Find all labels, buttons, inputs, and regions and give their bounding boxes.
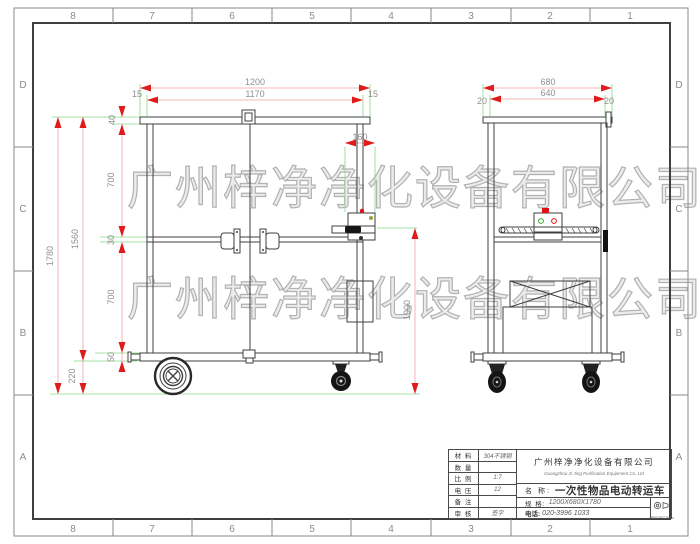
zone-col-label: 1 bbox=[627, 524, 633, 535]
company-name-cn: 广州梓净净化设备有限公司 bbox=[517, 456, 671, 468]
dim-680: 680 bbox=[540, 77, 555, 87]
top-latch bbox=[242, 110, 255, 124]
zone-col-label: 1 bbox=[627, 11, 633, 22]
red-button bbox=[360, 209, 364, 213]
zone-col-label: 6 bbox=[229, 524, 235, 535]
attr-value bbox=[479, 462, 516, 473]
zone-row-label: D bbox=[675, 80, 682, 91]
table-row: 审 核 签字 bbox=[449, 508, 516, 519]
spec-row: 规 格: 1200X680X1780 bbox=[517, 498, 650, 508]
table-row: 材 料 304不锈钢 bbox=[449, 450, 516, 462]
dim-220: 220 bbox=[67, 368, 77, 383]
name-label: 名 称: bbox=[525, 486, 551, 496]
attr-label: 数 量 bbox=[449, 462, 479, 473]
table-row: 数 量 bbox=[449, 462, 516, 474]
zone-col-label: 2 bbox=[547, 11, 553, 22]
dim-20-right: 20 bbox=[604, 96, 614, 106]
zone-col-label: 2 bbox=[547, 524, 553, 535]
attr-value: 签字 bbox=[479, 508, 516, 519]
attr-value: 1:7 bbox=[479, 473, 516, 484]
dim-700-lower: 700 bbox=[106, 289, 116, 304]
battery-box-front bbox=[347, 281, 373, 322]
zone-col-label: 3 bbox=[468, 524, 474, 535]
drive-wheel bbox=[155, 358, 191, 394]
zone-row-label: D bbox=[19, 80, 26, 91]
dim-160: 160 bbox=[352, 132, 367, 142]
dim-40: 40 bbox=[107, 115, 117, 125]
projection-cell: PROJECTION bbox=[650, 498, 671, 518]
zone-col-label: 6 bbox=[229, 11, 235, 22]
zone-row-label: A bbox=[676, 452, 683, 463]
company-block: 广州梓净净化设备有限公司 Guangzhou Zi Jing Purificat… bbox=[517, 450, 671, 484]
caster-side-right bbox=[582, 361, 600, 393]
attr-value bbox=[479, 496, 516, 507]
side-view bbox=[471, 112, 624, 393]
dim-700-upper: 700 bbox=[106, 172, 116, 187]
battery-box-side bbox=[503, 281, 592, 354]
zone-col-label: 4 bbox=[388, 11, 394, 22]
spec-label: 规 格: bbox=[525, 498, 546, 508]
table-row: 比 例 1:7 bbox=[449, 473, 516, 485]
dim-20-left: 20 bbox=[477, 96, 487, 106]
phone-value: 020-3996 1033 bbox=[542, 510, 589, 517]
zone-col-label: 5 bbox=[309, 524, 315, 535]
front-view bbox=[128, 110, 382, 394]
table-row: 备 注 bbox=[449, 496, 516, 508]
zone-col-label: 8 bbox=[70, 524, 76, 535]
control-box-front bbox=[332, 209, 375, 240]
table-row: 电 压 12 bbox=[449, 485, 516, 497]
zone-row-label: B bbox=[20, 328, 27, 339]
dim-1000: 1000 bbox=[402, 300, 412, 320]
attr-label: 电 压 bbox=[449, 485, 479, 496]
zone-col-label: 8 bbox=[70, 11, 76, 22]
spec-value: 1200X680X1780 bbox=[549, 499, 601, 506]
dim-1560: 1560 bbox=[70, 229, 80, 249]
dim-15-left: 15 bbox=[132, 89, 142, 99]
engineering-drawing-sheet: 广州梓净净化设备有限公司 广州梓净净化设备有限公司 8 7 6 bbox=[0, 0, 700, 544]
attr-label: 材 料 bbox=[449, 450, 479, 461]
zone-col-label: 7 bbox=[149, 11, 155, 22]
zone-col-label: 5 bbox=[309, 11, 315, 22]
zone-row-label: C bbox=[19, 204, 26, 215]
caster-side-left bbox=[488, 361, 506, 393]
zone-row-label: A bbox=[20, 452, 27, 463]
dim-1780: 1780 bbox=[45, 246, 55, 266]
attr-value: 304不锈钢 bbox=[479, 450, 516, 461]
title-block: 材 料 304不锈钢 数 量 比 例 1:7 电 压 12 备 注 审 核 签字 bbox=[448, 449, 672, 519]
dim-1200: 1200 bbox=[245, 77, 265, 87]
attr-label: 审 核 bbox=[449, 508, 479, 519]
control-panel-side bbox=[499, 208, 599, 240]
attr-label: 备 注 bbox=[449, 496, 479, 507]
product-name-row: 名 称: 一次性物品电动转运车 bbox=[517, 484, 671, 498]
third-angle-projection-icon bbox=[652, 500, 671, 511]
product-name: 一次性物品电动转运车 bbox=[555, 483, 665, 498]
dim-1170: 1170 bbox=[245, 89, 264, 99]
projection-label: PROJECTION bbox=[651, 516, 671, 520]
caster-front bbox=[331, 361, 351, 391]
company-name-en: Guangzhou Zi Jing Purification Equipment… bbox=[517, 471, 671, 476]
zone-col-label: 3 bbox=[468, 11, 474, 22]
handle-grip bbox=[345, 226, 361, 233]
dim-30: 30 bbox=[106, 235, 116, 245]
attr-label: 比 例 bbox=[449, 473, 479, 484]
zone-col-label: 7 bbox=[149, 524, 155, 535]
dim-15-right: 15 bbox=[368, 89, 378, 99]
dim-50: 50 bbox=[106, 352, 116, 362]
phone-row: 电话: 020-3996 1033 bbox=[517, 508, 650, 518]
dim-640: 640 bbox=[540, 88, 555, 98]
attr-value: 12 bbox=[479, 485, 516, 496]
dimension-lines bbox=[58, 88, 612, 394]
title-block-main: 广州梓净净化设备有限公司 Guangzhou Zi Jing Purificat… bbox=[517, 450, 671, 518]
phone-label: 电话: bbox=[525, 508, 540, 518]
zone-row-label: C bbox=[675, 204, 682, 215]
zone-row-label: B bbox=[676, 328, 683, 339]
zone-col-label: 4 bbox=[388, 524, 394, 535]
red-button bbox=[542, 208, 549, 213]
extension-lines bbox=[50, 84, 612, 394]
title-block-attribute-table: 材 料 304不锈钢 数 量 比 例 1:7 电 压 12 备 注 审 核 签字 bbox=[449, 450, 517, 518]
